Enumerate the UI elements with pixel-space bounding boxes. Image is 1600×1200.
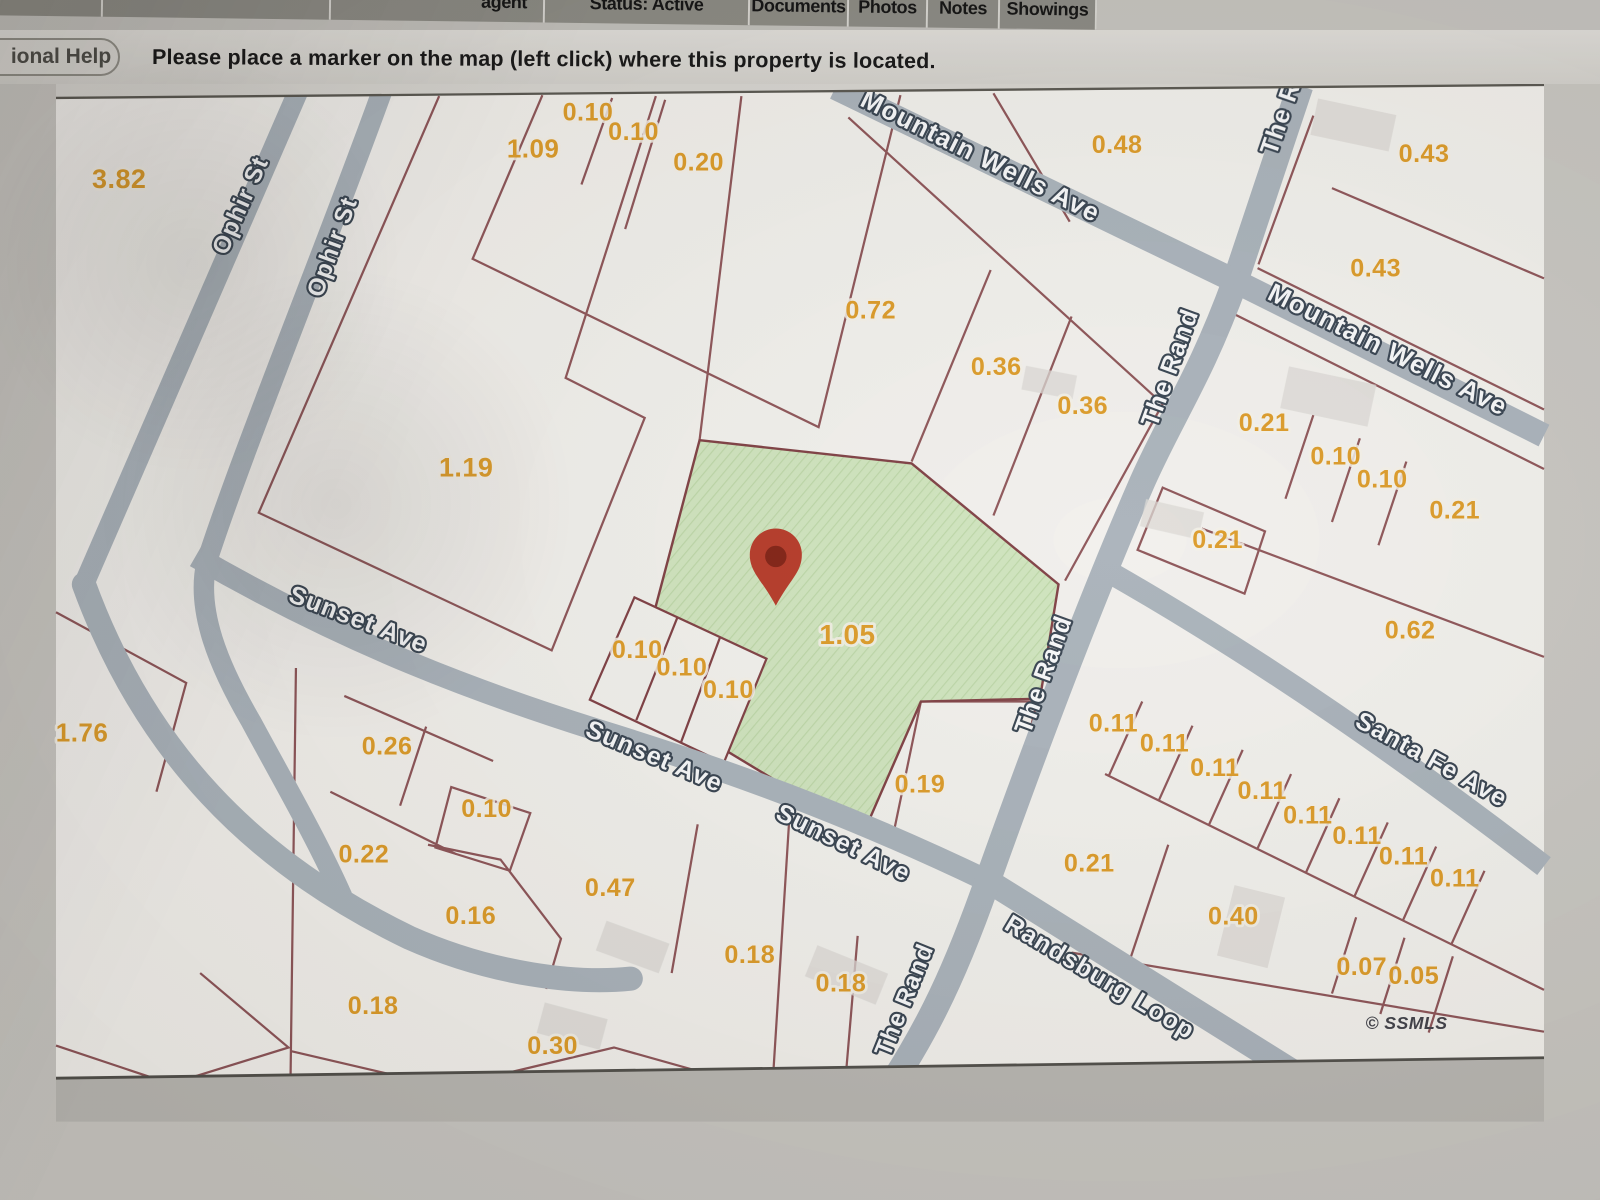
parcel-acreage-label: 0.26 (362, 733, 413, 761)
parcel-acreage-label: 0.20 (673, 148, 724, 176)
parcel-acreage-label: 0.36 (1057, 392, 1108, 420)
tab-status-active[interactable]: Status: Active (545, 0, 751, 25)
tab-photos[interactable]: Photos (849, 0, 929, 28)
tab-notes[interactable]: Notes (928, 0, 1001, 28)
parcel-acreage-label: 0.10 (1357, 466, 1408, 494)
parcel-acreage-label: 0.43 (1350, 255, 1401, 283)
tab-agent[interactable]: agent (331, 0, 546, 23)
parcel-acreage-label: 0.47 (585, 874, 636, 902)
parcel-acreage-label: 0.10 (1310, 442, 1361, 470)
parcel-acreage-label: 0.48 (1092, 131, 1143, 159)
parcel-acreage-label: 0.18 (724, 941, 775, 969)
map-instruction-text: Please place a marker on the map (left c… (152, 30, 936, 88)
map-copyright: © SSMLS (1365, 1013, 1447, 1033)
help-bar: ional Help Please place a marker on the … (0, 30, 1600, 84)
parcel-acreage-label: 0.11 (1379, 842, 1428, 870)
parcel-acreage-label: 0.07 (1336, 953, 1387, 981)
tab-agent-label: agent (481, 0, 527, 13)
parcel-acreage-label: 1.76 (56, 718, 109, 748)
parcel-acreage-label: 0.36 (971, 353, 1022, 381)
parcel-acreage-label: 0.10 (657, 653, 708, 681)
tab-status-label: Status: Active (590, 0, 704, 15)
tab-bar-filler (1097, 0, 1600, 30)
parcel-acreage-label: 0.05 (1388, 962, 1439, 990)
parcel-acreage-label: 0.43 (1399, 140, 1450, 168)
parcel-acreage-label: 0.11 (1238, 777, 1287, 805)
parcel-acreage-label: 0.21 (1429, 496, 1480, 524)
parcel-acreage-label: 0.19 (895, 771, 946, 799)
additional-help-button[interactable]: ional Help (0, 38, 120, 76)
parcel-acreage-label: 0.18 (348, 992, 399, 1020)
tab-documents-label: Documents (751, 0, 846, 17)
parcel-acreage-label: 0.11 (1089, 709, 1138, 737)
tab-unlabeled-1[interactable] (0, 0, 103, 17)
parcel-acreage-label: 0.30 (527, 1032, 578, 1060)
tab-showings[interactable]: Showings (1000, 0, 1098, 30)
parcel-acreage-label: 0.40 (1208, 903, 1259, 931)
parcel-acreage-label: 0.11 (1140, 730, 1189, 758)
parcel-acreage-label: 0.10 (461, 795, 512, 823)
parcel-acreage-label: 0.11 (1332, 822, 1381, 850)
parcel-acreage-label: 0.11 (1283, 801, 1332, 829)
parcel-acreage-label: 0.21 (1192, 526, 1243, 554)
parcel-acreage-label: 0.16 (445, 902, 496, 930)
parcel-acreage-label: 0.10 (608, 118, 659, 146)
parcel-acreage-label: 0.11 (1430, 865, 1479, 893)
parcel-acreage-label: 0.62 (1385, 616, 1436, 644)
parcel-acreage-label: 0.10 (612, 636, 663, 664)
parcel-acreage-label: 0.11 (1190, 754, 1239, 782)
parcel-acreage-label: 1.19 (439, 452, 493, 482)
parcel-acreage-label: 0.21 (1239, 409, 1290, 437)
parcel-acreage-label: 1.09 (507, 133, 560, 163)
tab-unlabeled-2[interactable] (103, 0, 332, 20)
parcel-acreage-label: 0.10 (563, 98, 614, 126)
parcel-acreage-label: 0.18 (816, 970, 867, 998)
tab-showings-label: Showings (1006, 0, 1088, 20)
tab-documents[interactable]: Documents (750, 0, 850, 26)
parcel-acreage-label: 1.05 (819, 619, 875, 650)
parcel-map[interactable]: Ophir StOphir StMountain Wells AveThe Ra… (0, 84, 1600, 1200)
tab-photos-label: Photos (858, 0, 917, 18)
parcel-acreage-label: 0.22 (338, 840, 389, 868)
parcel-acreage-label: 0.10 (703, 676, 754, 704)
parcel-acreage-label: 3.82 (92, 164, 146, 194)
parcel-acreage-label: 0.72 (845, 296, 896, 324)
top-tab-bar: agent Status: Active Documents Photos No… (0, 0, 1600, 30)
tab-strip: agent Status: Active Documents Photos No… (0, 0, 1600, 30)
parcel-acreage-label: 0.21 (1064, 850, 1115, 878)
tab-notes-label: Notes (939, 0, 987, 19)
